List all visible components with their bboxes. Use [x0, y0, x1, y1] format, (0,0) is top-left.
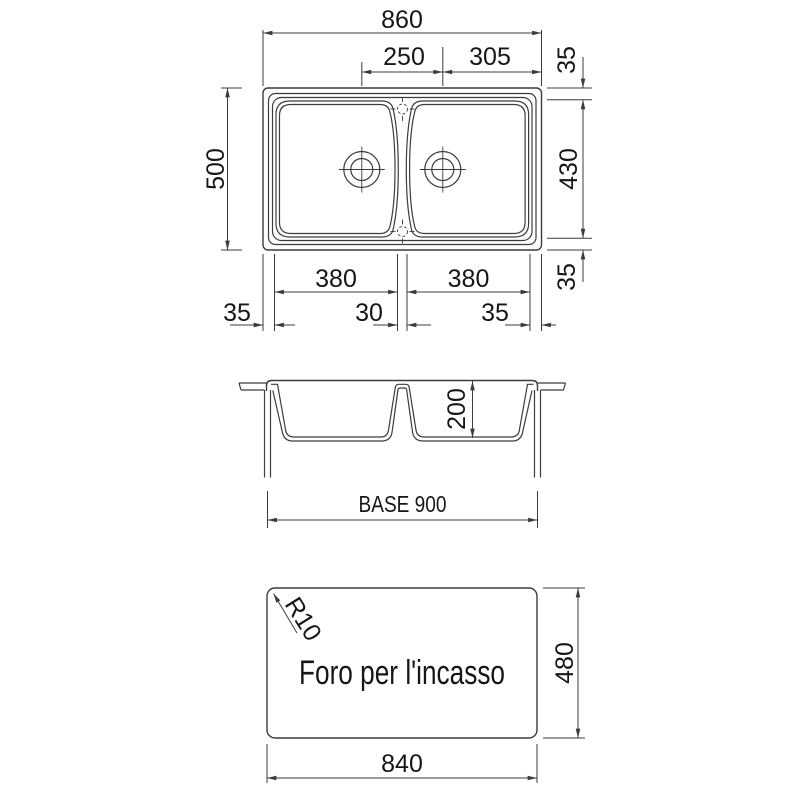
dim-corner-radius-label: R10 [279, 592, 327, 646]
dim-margin-right-label: 35 [481, 299, 509, 327]
dim-overall-depth: 500 [202, 88, 242, 250]
countertop-left [239, 383, 267, 390]
dim-cutout-height: 480 [543, 588, 585, 738]
dim-margin-back-label: 35 [553, 46, 581, 74]
dim-width-chain: 380 380 35 30 35 [223, 254, 556, 331]
dim-bowl-height: 200 [443, 381, 473, 438]
dim-bowl-left-width-label: 380 [315, 265, 357, 293]
dim-depth-chain: 35 430 35 [547, 46, 592, 291]
dim-drain-spacing-label: 250 [383, 43, 425, 71]
dim-drain-positions: 250 305 [362, 43, 542, 86]
dim-margin-front-label: 35 [553, 263, 581, 291]
drawing-sheet: 860 250 305 35 430 35 [0, 0, 800, 800]
section-view: 200 BASE 900 [239, 381, 566, 529]
dim-cutout-height-label: 480 [551, 642, 579, 684]
dim-overall-width-label: 860 [381, 6, 423, 34]
cutout-view: R10 Foro per l'incasso 480 840 [267, 588, 585, 783]
dim-divider-width-label: 30 [355, 299, 383, 327]
cabinet-panel-right [535, 390, 541, 478]
dim-base-width-label: BASE 900 [359, 491, 447, 517]
sink-plan-outline [263, 88, 542, 250]
cutout-label: Foro per l'incasso [299, 654, 505, 692]
sink-technical-drawing: 860 250 305 35 430 35 [0, 0, 800, 800]
dim-cutout-width: 840 [267, 744, 537, 783]
dim-margin-left-label: 35 [223, 299, 251, 327]
cabinet-panel-left [265, 390, 271, 478]
bowl-right-inner-line [410, 105, 525, 234]
dim-bowl-height-label: 200 [443, 388, 471, 430]
tap-hole-back-circle [398, 104, 408, 114]
drain-left [339, 147, 385, 193]
dim-overall-depth-label: 500 [202, 148, 230, 190]
sink-section-profile [267, 381, 538, 442]
corner-radius-callout: R10 [274, 592, 327, 646]
dim-drain-to-right-label: 305 [469, 43, 511, 71]
rim-top-edge [267, 381, 538, 392]
dim-bowl-depth-label: 430 [555, 148, 583, 190]
sink-outer-edge [263, 88, 542, 250]
dim-base-width: BASE 900 [268, 491, 538, 528]
dim-bowl-right-width-label: 380 [448, 265, 490, 293]
dim-cutout-width-label: 840 [381, 750, 423, 778]
shell-outer-line [273, 388, 532, 441]
countertop-right [538, 383, 566, 390]
drain-right [420, 147, 466, 193]
tap-hole-back [391, 97, 415, 121]
top-view: 860 250 305 35 430 35 [202, 6, 592, 331]
tap-hole-front-circle [398, 227, 408, 237]
bowl-left-inner-line [280, 105, 396, 234]
bowl-cavity-line [271, 384, 534, 437]
